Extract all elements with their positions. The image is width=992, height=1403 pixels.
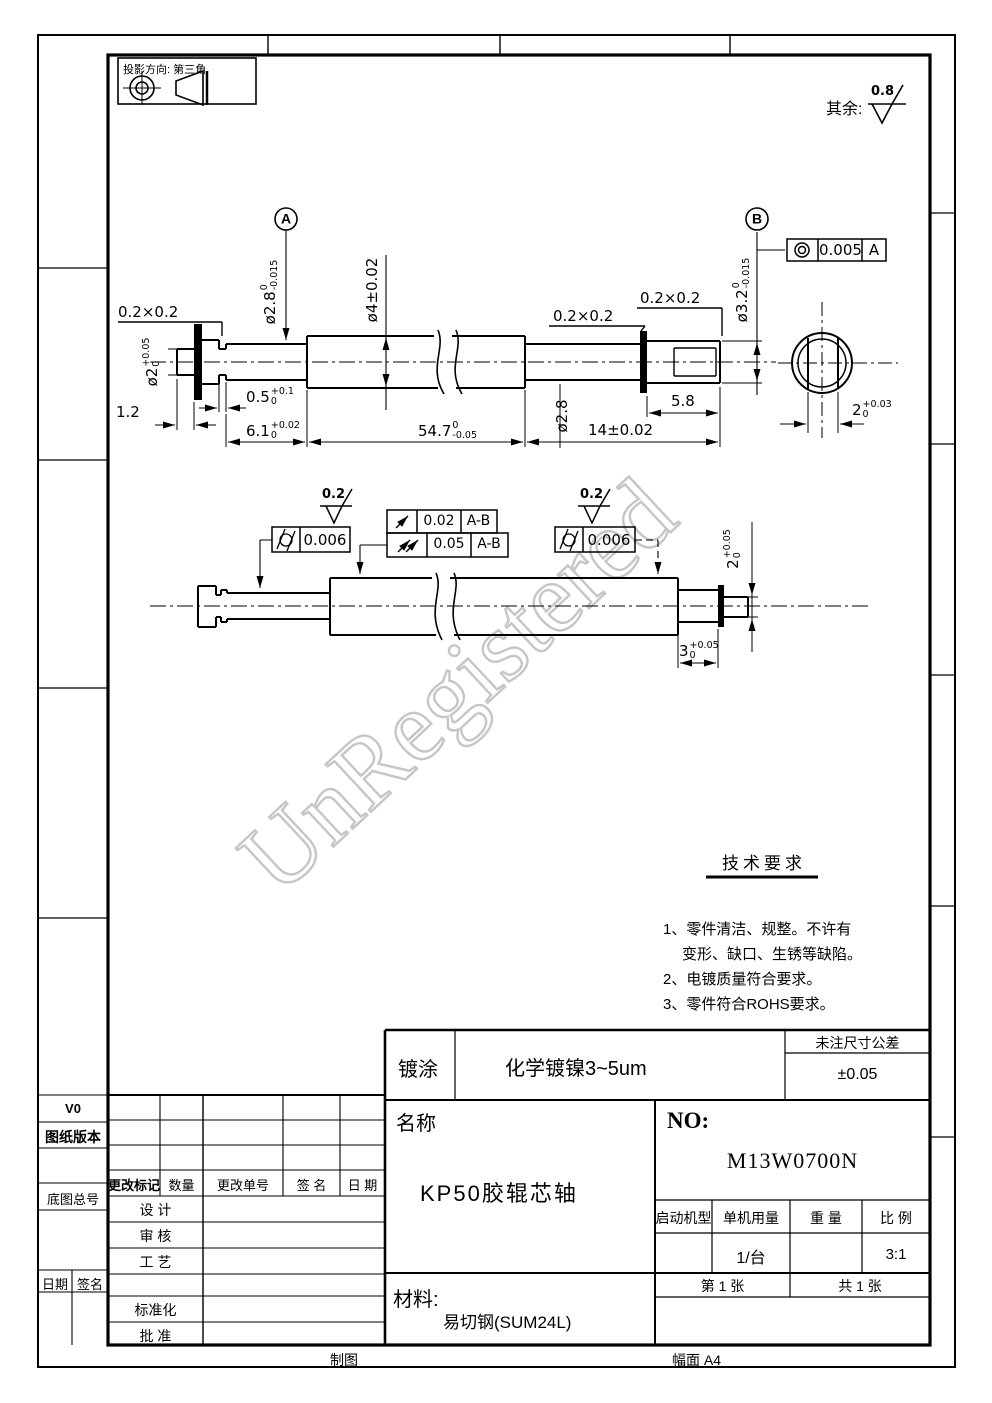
rev-row-process: 工 艺 bbox=[108, 1252, 203, 1272]
dim-dia-3-2: ø3.2 0-0.015 bbox=[732, 258, 752, 323]
surface-rest-value: 0.8 bbox=[871, 84, 894, 99]
rev-header-qty: 数量 bbox=[160, 1175, 203, 1194]
material-value: 易切钢(SUM24L) bbox=[443, 1308, 571, 1333]
datum-a-label: A bbox=[281, 211, 291, 227]
scale-value: 3:1 bbox=[862, 1246, 930, 1263]
dim-14: 14±0.02 bbox=[588, 421, 653, 439]
fcf-concentricity-value: 0.005 bbox=[819, 241, 861, 259]
tech-req-title: 技术要求 bbox=[722, 849, 806, 874]
usage-label: 单机用量 bbox=[712, 1208, 790, 1228]
surface-rest-label: 其余: bbox=[826, 95, 862, 119]
dim-dia-4: ø4±0.02 bbox=[363, 258, 381, 323]
fcf-cylindricity-right-value: 0.006 bbox=[584, 531, 634, 549]
dim-dia-2: ø2 +0.050 bbox=[142, 338, 162, 387]
date-label: 日期 bbox=[38, 1274, 72, 1293]
coating-label: 镀涂 bbox=[398, 1053, 438, 1082]
dim-6-1: 6.1 +0.020 bbox=[246, 421, 300, 441]
drawing-sheet: UnRegistered bbox=[0, 0, 992, 1403]
dim-dia-2-8: ø2.8 0-0.015 bbox=[260, 260, 280, 325]
no-label: NO: bbox=[667, 1108, 709, 1134]
sign-label: 签名 bbox=[72, 1274, 108, 1293]
dim-5-8: 5.8 bbox=[671, 392, 695, 410]
fcf-total-runout-value: 0.05 bbox=[428, 536, 470, 552]
datum-b-label: B bbox=[752, 211, 762, 227]
rev-header-sign: 签 名 bbox=[283, 1175, 340, 1194]
roughness-left-value: 0.2 bbox=[322, 487, 345, 502]
tech-req-line: 1、零件清洁、规整。不许有 bbox=[663, 918, 851, 939]
fcf-runout-datum: A-B bbox=[461, 513, 496, 529]
sheet-total: 共 1 张 bbox=[790, 1276, 930, 1296]
fcf-runout-value: 0.02 bbox=[418, 513, 460, 529]
tech-req-line: 变形、缺口、生锈等缺陷。 bbox=[682, 943, 862, 964]
rev-header-order: 更改单号 bbox=[203, 1175, 283, 1194]
tolerance-header: 未注尺寸公差 bbox=[785, 1033, 930, 1053]
rev-header-date: 日 期 bbox=[340, 1175, 385, 1194]
main-view-linework bbox=[118, 208, 898, 448]
version-label: 图纸版本 bbox=[38, 1127, 108, 1147]
version-value: V0 bbox=[38, 1101, 108, 1116]
circular-runout-icon bbox=[396, 516, 408, 528]
fcf-total-runout-datum: A-B bbox=[471, 536, 507, 552]
chamfer-right: 0.2×0.2 bbox=[640, 289, 700, 307]
name-label: 名称 bbox=[396, 1107, 436, 1136]
roughness-right-value: 0.2 bbox=[580, 487, 603, 502]
chamfer-left: 0.2×0.2 bbox=[118, 303, 178, 321]
concentricity-icon bbox=[795, 243, 809, 257]
base-no-label: 底图总号 bbox=[38, 1189, 108, 1208]
rev-header-mark: 更改标记 bbox=[108, 1175, 160, 1194]
tolerance-value: ±0.05 bbox=[785, 1066, 930, 1084]
rev-row-approve: 批 准 bbox=[108, 1326, 203, 1346]
usage-value: 1/台 bbox=[712, 1244, 790, 1268]
chamfer-mid: 0.2×0.2 bbox=[553, 307, 613, 325]
tech-req-line: 3、零件符合ROHS要求。 bbox=[663, 993, 835, 1014]
dim-dia-2-8-right: ø2.8 bbox=[553, 399, 571, 432]
fcf-concentricity-datum: A bbox=[863, 241, 885, 259]
dim-2-flats: 2 +0.030 bbox=[852, 400, 892, 420]
weight-label: 重 量 bbox=[790, 1208, 862, 1228]
drawing-no: M13W0700N bbox=[655, 1148, 930, 1174]
bottom-left-label: 制图 bbox=[330, 1350, 358, 1370]
projection-label: 投影方向: 第三角 bbox=[123, 61, 206, 77]
bottom-right-label: 幅面 A4 bbox=[672, 1350, 721, 1370]
dim-1-2: 1.2 bbox=[116, 403, 140, 421]
dim-54-7: 54.7 0-0.05 bbox=[418, 421, 477, 441]
dim-3-end: 3 +0.050 bbox=[679, 641, 719, 661]
rev-row-check: 审 核 bbox=[108, 1226, 203, 1246]
part-name: KP50胶辊芯轴 bbox=[420, 1176, 578, 1208]
scale-label: 比 例 bbox=[862, 1208, 930, 1228]
dim-2-end: 2 +0.050 bbox=[723, 529, 743, 569]
rev-row-design: 设 计 bbox=[108, 1200, 203, 1220]
sheet-no: 第 1 张 bbox=[655, 1276, 790, 1296]
total-runout-icon bbox=[398, 540, 418, 552]
material-label: 材料: bbox=[393, 1283, 439, 1312]
tech-req-line: 2、电镀质量符合要求。 bbox=[663, 968, 821, 989]
dim-0-5: 0.5 +0.10 bbox=[246, 387, 294, 407]
machine-label: 启动机型 bbox=[655, 1208, 712, 1228]
coating-value: 化学镀镍3~5um bbox=[505, 1052, 647, 1081]
fcf-cylindricity-left-value: 0.006 bbox=[301, 531, 349, 549]
rev-row-standard: 标准化 bbox=[108, 1300, 203, 1320]
